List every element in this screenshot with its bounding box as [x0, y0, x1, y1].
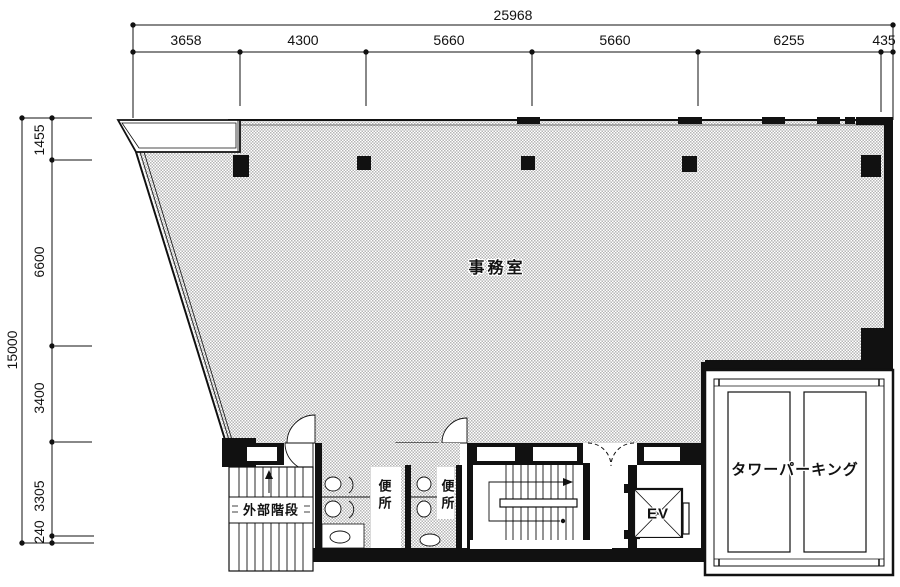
room-label-external-stair: 外部階段	[241, 504, 301, 517]
room-label-tower-parking: タワーパーキング	[731, 463, 858, 478]
dim-top-seg-2: 4300	[287, 33, 318, 47]
dim-top-seg-3: 5660	[433, 33, 464, 47]
dim-top-total: 25968	[494, 8, 533, 22]
floor-plan-drawing: 25968 3658 4300 5660 5660 6255 435 15000…	[0, 0, 900, 587]
dim-top-seg-6: 435	[872, 33, 895, 47]
room-label-toilet-right: 便所	[441, 479, 454, 513]
dim-left-seg-5: 240	[32, 520, 46, 543]
dim-left-total: 15000	[5, 331, 19, 370]
dim-top-seg-1: 3658	[170, 33, 201, 47]
external-staircase	[229, 467, 313, 571]
dim-left-seg-1: 1455	[32, 124, 46, 155]
room-label-elevator: EV	[647, 507, 669, 522]
dim-top-seg-4: 5660	[599, 33, 630, 47]
canopy	[118, 120, 240, 152]
dim-left-seg-2: 6600	[32, 246, 46, 277]
dim-left-seg-3: 3400	[32, 382, 46, 413]
room-label-toilet-left: 便所	[378, 479, 391, 513]
dim-top-seg-5: 6255	[773, 33, 804, 47]
dim-left-seg-4: 3305	[32, 480, 46, 511]
room-label-office: 事務室	[468, 261, 525, 277]
